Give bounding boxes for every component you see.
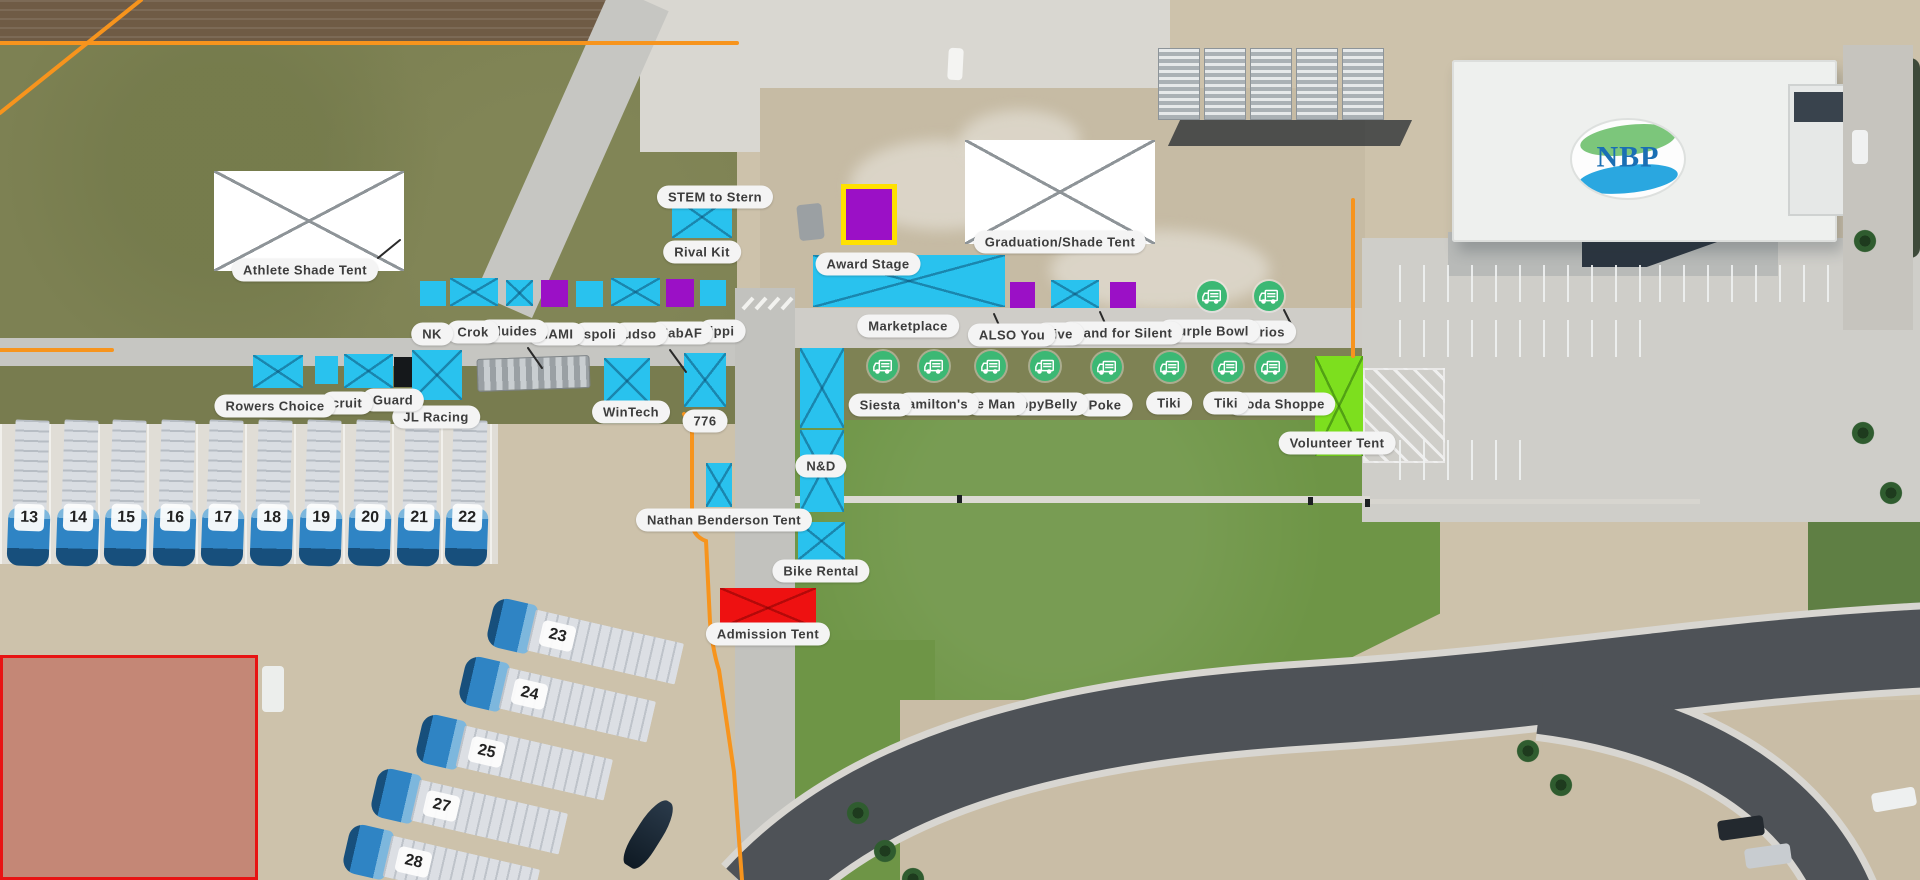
map-label: Nathan Benderson Tent — [636, 509, 812, 532]
map-label: Graduation/Shade Tent — [974, 231, 1146, 254]
map-label: Athlete Shade Tent — [232, 259, 378, 282]
map-label: Rowers Choice — [214, 395, 335, 418]
map-label: Admission Tent — [706, 623, 830, 646]
map-label: WinTech — [592, 401, 670, 424]
map-label: N&D — [795, 455, 846, 478]
map-label: Bike Rental — [772, 560, 869, 583]
map-label: Tiki — [1146, 392, 1192, 415]
boundary-orange-line — [0, 0, 1353, 880]
map-label: 776 — [683, 410, 728, 433]
map-label: Siesta — [849, 394, 912, 417]
map-label: Tiki — [1203, 392, 1249, 415]
map-label: Volunteer Tent — [1279, 432, 1396, 455]
map-label: Marketplace — [857, 315, 959, 338]
map-label: ALSO You — [968, 324, 1056, 347]
map-label: NK — [411, 323, 453, 346]
map-label: Crok — [446, 321, 499, 344]
map-label: Award Stage — [816, 253, 921, 276]
map-label: Rival Kit — [663, 241, 741, 264]
venue-map: NBP — [0, 0, 1920, 880]
boundary-layer — [0, 0, 1920, 880]
map-label: STEM to Stern — [657, 186, 773, 209]
